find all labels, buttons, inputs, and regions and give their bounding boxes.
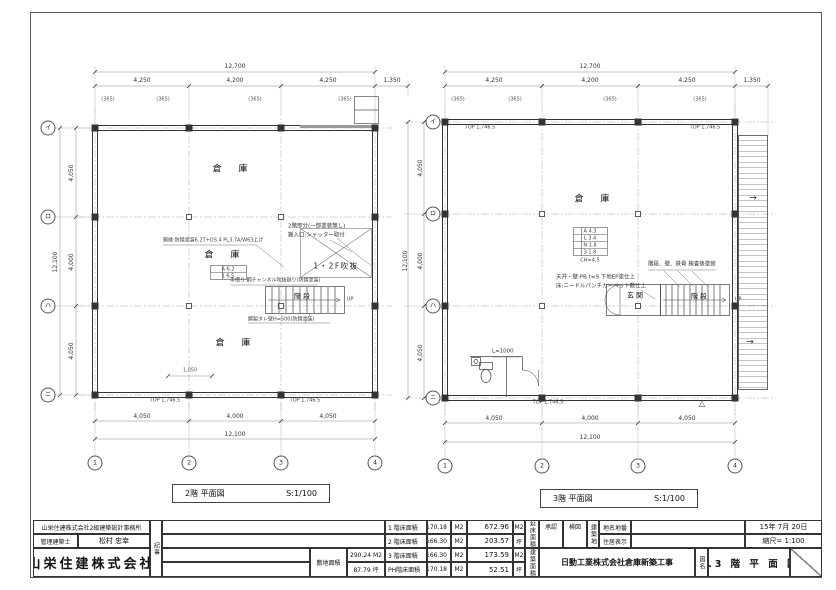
interior-columns-2f	[187, 215, 284, 309]
room-label-warehouse: 倉 庫	[568, 196, 617, 205]
tb-ph-area-unit: M2	[451, 562, 467, 577]
grid-bubble: ニ	[426, 391, 441, 406]
dim-top-bay-2f: 4,250	[133, 78, 150, 84]
tb-total-area-label: 延床面積	[525, 520, 539, 548]
dim-bottom-bay-2f: 4,050	[133, 414, 150, 420]
note-2f-paint: 2階部分(一部塗装無し)	[288, 224, 345, 230]
dim-top-overall-3f: 12,700	[580, 64, 601, 70]
dim-bottom-bay-2f: 4,000	[226, 414, 243, 420]
grid-bubble: 3	[631, 459, 646, 474]
dim-bottom-bay-3f: 4,050	[678, 416, 695, 422]
plan-title-2f-text: 2階 平面図	[185, 488, 225, 499]
plan-title-3f-text: 3階 平面図	[553, 493, 593, 504]
dim-left-overall-2f: 12,100	[53, 252, 59, 273]
tb-notes-label: 記事	[150, 520, 162, 577]
grid-bubble: 4	[368, 456, 383, 471]
exterior-stair-arrow: →	[746, 339, 754, 348]
plan-linework	[0, 0, 836, 590]
tb-2f-area-value: 166.30	[427, 534, 451, 548]
plan-title-2f: 2階 平面図 S:1/100	[172, 484, 330, 503]
tb-address-value	[631, 534, 745, 548]
tb-architect-name: 松村 忠幸	[78, 534, 150, 548]
grid-bubble: 2	[535, 459, 550, 474]
dimension-ticks	[58, 70, 770, 444]
dim-top-overall-2f: 12,700	[225, 64, 246, 70]
note-2f-girt: 胴縁:防錆塗装6.2T+DS.4 PL3.7A/W63上げ	[163, 239, 263, 244]
grid-bubble: ロ	[41, 210, 56, 225]
wall-offset-3f: (365)	[693, 98, 706, 103]
tb-1f-area-unit: M2	[451, 520, 467, 534]
dimension-lines	[60, 72, 768, 442]
dim-bottom-overall-3f: 12,100	[580, 435, 601, 441]
dim-top-bay-2f: 4,250	[319, 78, 336, 84]
plan-scale-2f-text: S:1/100	[286, 489, 317, 498]
note-3f-ceiling: 天井・壁:PB t=9 下地EP塗仕上	[556, 275, 635, 281]
level-marker: △	[699, 400, 705, 408]
tb-dwgname-label: 図名	[695, 548, 708, 577]
wall-offset-2f: (365)	[156, 98, 169, 103]
beam-tag: TOP 1,746.5	[465, 126, 496, 131]
tb-building-unit-m2: M2	[513, 548, 525, 562]
dim-bottom-overall-2f: 12,100	[225, 432, 246, 438]
finish-tag-3f: L 3.4	[584, 237, 596, 242]
dim-left-overall-3f: 12,100	[403, 251, 409, 272]
dim-left-bay-3f: 4,000	[418, 252, 424, 269]
dim-left-bay-2f: 4,050	[69, 164, 75, 181]
room-label-warehouse: 倉 庫	[209, 340, 258, 349]
wall-offset-2f: (365)	[248, 98, 261, 103]
tb-lot-label: 地名地番	[599, 520, 631, 534]
stair-label: 階段	[691, 294, 709, 301]
tb-ph-area-label: PH階床面積	[385, 562, 427, 577]
tb-scale: 縮尺= 1:100	[745, 534, 822, 548]
tb-notes-row1	[162, 520, 385, 534]
room-label-warehouse: 倉 庫	[198, 252, 247, 261]
dim-left-bay-2f: 4,050	[69, 342, 75, 359]
grid-bubble: ハ	[426, 299, 441, 314]
note-2f-handrail: 手摺り:鋼チャンネル吹抜廻り(防錆塗装)	[230, 279, 320, 284]
tb-3f-area-unit: M2	[451, 548, 467, 562]
drawing-sheet: 12,7004,2504,2004,2501,350(365)(365)(365…	[0, 0, 836, 590]
dim-small-2f: 1,050	[183, 369, 197, 374]
finish-tag-2f: A 6.2	[222, 268, 235, 273]
dim-top-bay-3f: 4,250	[485, 78, 502, 84]
grid-bubble: ニ	[41, 388, 56, 403]
plan-title-3f: 3階 平面図 S:1/100	[540, 489, 698, 508]
tb-lot-value	[631, 520, 745, 534]
plan-scale-3f-text: S:1/100	[654, 494, 685, 503]
dim-left-bay-3f: 4,050	[418, 159, 424, 176]
tb-notes-row3	[162, 548, 310, 562]
tb-notes-row4	[162, 562, 310, 577]
tb-total-unit-m2: M2	[513, 520, 525, 534]
tb-building-area-m2: 173.59	[467, 548, 513, 562]
tb-date: 15年 7月 20日	[745, 520, 822, 534]
tb-building-area-label: 建築面積	[525, 548, 539, 577]
tb-dwg-no	[790, 548, 822, 577]
note-2f-wall: 鋼製タレ壁H=500(防錆塗装)	[248, 318, 314, 323]
note-3f-stair-paint: 階段、壁、鉄骨 検査後塗装	[648, 262, 716, 268]
wall-offset-2f: (365)	[101, 98, 114, 103]
finish-tag-3f: A 4.3	[584, 230, 597, 235]
grid-bubble: ロ	[426, 207, 441, 222]
room-label-warehouse: 倉 庫	[206, 166, 255, 175]
dim-bottom-bay-3f: 4,050	[485, 416, 502, 422]
dim-top-bay-2f: 4,200	[226, 78, 243, 84]
tb-total-unit-tsubo: 坪	[513, 534, 525, 548]
wall-offset-3f: (365)	[603, 98, 616, 103]
tb-total-area-m2: 672.96	[467, 520, 513, 534]
dim-top-bay-3f: 4,200	[581, 78, 598, 84]
exterior-stair-3f	[739, 136, 768, 390]
note-3f-wc: L=1000	[492, 349, 514, 355]
wall-offset-3f: (365)	[508, 98, 521, 103]
tb-dwg-title: 2.3 階 平 面 図	[708, 548, 790, 577]
exterior-stair-arrow: →	[749, 195, 757, 204]
tb-check-label: 検図	[563, 520, 587, 548]
tb-3f-area-value: 166.30	[427, 548, 451, 562]
dim-left-bay-3f: 4,050	[418, 344, 424, 361]
grid-bubble: 1	[438, 459, 453, 474]
dim-left-bay-2f: 4,000	[69, 253, 75, 270]
dim-top-ext-3f: 1,350	[743, 78, 760, 84]
tb-design-office: 山栄住建株式会社2級建築設計事務所	[33, 520, 150, 534]
stair-up-label: UP	[735, 298, 742, 303]
beam-tag: TOP 1,746.5	[290, 399, 321, 404]
grid-bubble: イ	[426, 115, 441, 130]
wc-3f	[470, 357, 539, 398]
finish-tag-3f: N 1.8	[583, 244, 596, 249]
grid-bubble: ハ	[41, 299, 56, 314]
beam-tag: TOP 1,746.5	[690, 126, 721, 131]
grid-bubble: イ	[41, 121, 56, 136]
beam-tag: TOP 1,746.5	[150, 399, 181, 404]
tb-2f-area-label: 2 階床面積	[385, 534, 427, 548]
tb-1f-area-label: 1 階床面積	[385, 520, 427, 534]
tb-site-area-label: 敷地面積	[310, 548, 347, 577]
tb-notes-row2	[162, 534, 385, 548]
tb-company-name: 山栄住建株式会社	[33, 548, 150, 577]
tb-1f-area-value: 170.18	[427, 520, 451, 534]
tb-project-name: 日動工業株式会社倉庫新築工事	[539, 548, 695, 577]
grid-bubble: 3	[274, 456, 289, 471]
grid-bubble: 4	[728, 459, 743, 474]
tb-3f-area-label: 3 階床面積	[385, 548, 427, 562]
tb-site-area-m2: 290.24 M2	[347, 548, 385, 562]
dim-top-bay-3f: 4,250	[678, 78, 695, 84]
dim-bottom-bay-2f: 4,050	[319, 414, 336, 420]
tb-2f-area-unit: M2	[451, 534, 467, 548]
tb-ph-area-value: 170.18	[427, 562, 451, 577]
dim-bottom-bay-3f: 4,000	[581, 416, 598, 422]
beam-tag: TOP 1,746.5	[533, 401, 564, 406]
note-2f-shutter: 搬入口:シャッター取付	[288, 233, 345, 239]
finish-tag-3f: CH=4.5	[580, 259, 599, 264]
wall-offset-2f: (365)	[338, 98, 351, 103]
room-label-entrance: 玄関	[627, 293, 645, 300]
tb-approval-label: 承認	[539, 520, 563, 548]
finish-tag-3f: 3 1.8	[584, 251, 597, 256]
tb-buildsite-label: 建築地	[587, 520, 599, 548]
tb-architect-label: 管理建築士	[33, 534, 78, 548]
stair-up-label: UP	[347, 298, 354, 303]
tb-total-area-tsubo: 203.57	[467, 534, 513, 548]
tb-building-unit-tsubo: 坪	[513, 562, 525, 577]
stair-label: 階段	[294, 294, 312, 301]
tb-address-label: 住居表示	[599, 534, 631, 548]
dim-top-ext-2f: 1,350	[383, 78, 400, 84]
note-3f-floor: 床:ニードルパンチカーペット敷仕上	[556, 284, 646, 290]
wall-offset-3f: (365)	[451, 98, 464, 103]
void-label: 1・2F吹抜	[313, 262, 358, 270]
tb-building-area-tsubo: 52.51	[467, 562, 513, 577]
tb-site-area-tsubo: 87.79 坪	[347, 562, 385, 577]
grid-bubble: 2	[182, 456, 197, 471]
grid-bubble: 1	[88, 456, 103, 471]
